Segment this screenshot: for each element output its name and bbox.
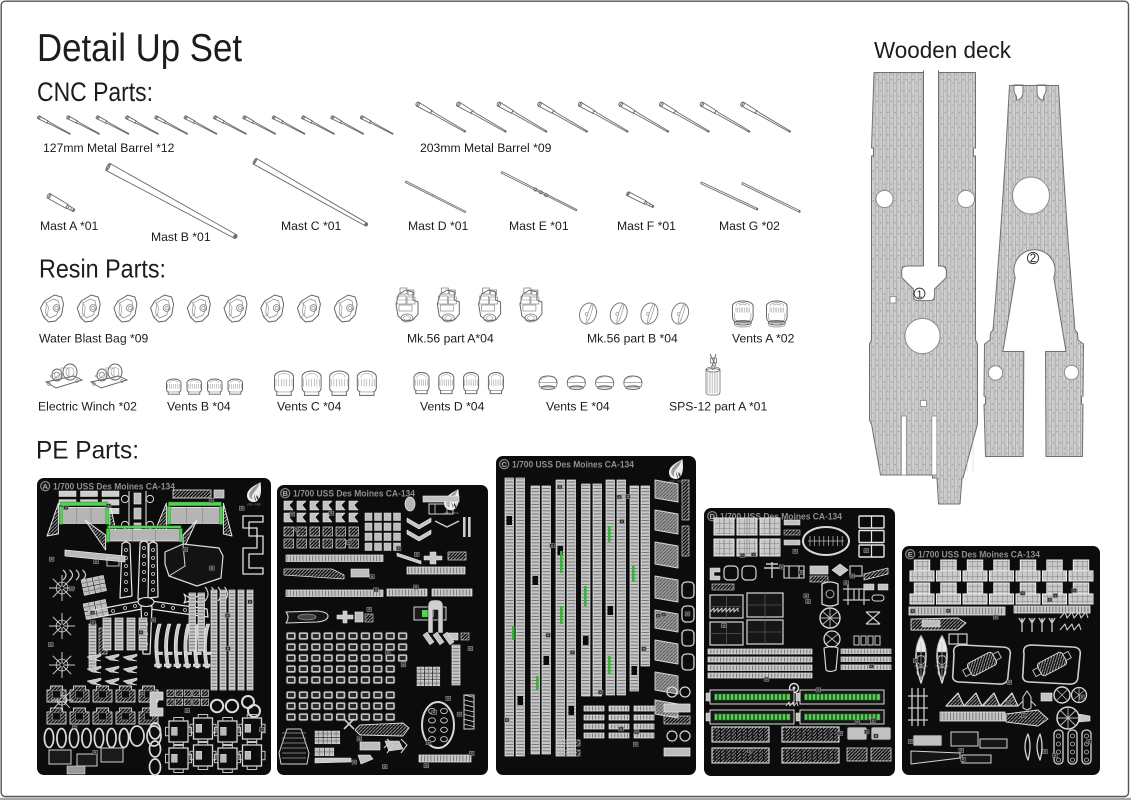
svg-text:1/700 USS Des Moines CA-134: 1/700 USS Des Moines CA-134: [293, 488, 416, 499]
svg-text:Mast F *01: Mast F *01: [617, 219, 676, 233]
svg-text:203mm Metal Barrel *09: 203mm Metal Barrel *09: [420, 141, 552, 155]
svg-text:1/700 USS Des Moines CA-134: 1/700 USS Des Moines CA-134: [53, 481, 176, 492]
svg-text:1: 1: [917, 289, 923, 301]
svg-text:Water Blast Bag *09: Water Blast Bag *09: [39, 332, 149, 346]
svg-text:Mast A *01: Mast A *01: [40, 219, 98, 233]
svg-text:A: A: [42, 482, 48, 491]
svg-text:Vents C *04: Vents C *04: [277, 399, 342, 413]
svg-text:E: E: [908, 550, 913, 559]
svg-text:Vents E *04: Vents E *04: [546, 399, 610, 413]
svg-text:Resin Parts:: Resin Parts:: [39, 254, 166, 284]
svg-text:Mast E *01: Mast E *01: [509, 219, 569, 233]
svg-text:Vents A *02: Vents A *02: [732, 332, 795, 346]
svg-text:Mast G *02: Mast G *02: [719, 219, 780, 233]
svg-text:2: 2: [1030, 253, 1036, 265]
svg-text:Detail Up Set: Detail Up Set: [37, 27, 242, 70]
svg-text:Electric Winch *02: Electric Winch *02: [38, 399, 137, 413]
svg-text:Mk.56 part B *04: Mk.56 part B *04: [587, 332, 678, 346]
svg-text:Mast B *01: Mast B *01: [151, 230, 211, 244]
svg-text:Mast C *01: Mast C *01: [281, 219, 342, 233]
svg-text:B: B: [282, 489, 288, 498]
svg-text:SPS-12 part A *01: SPS-12 part A *01: [669, 399, 767, 413]
svg-text:Mk.56 part A*04: Mk.56 part A*04: [407, 332, 494, 346]
svg-text:Wooden deck: Wooden deck: [874, 37, 1011, 63]
svg-text:VERY FIRE: VERY FIRE: [247, 502, 261, 506]
svg-text:1/700 USS Des Moines CA-134: 1/700 USS Des Moines CA-134: [512, 459, 635, 470]
svg-text:PE Parts:: PE Parts:: [36, 437, 139, 465]
svg-text:C: C: [501, 460, 507, 469]
svg-text:Vents D *04: Vents D *04: [420, 399, 485, 413]
svg-text:1/700 USS Des Moines CA-134: 1/700 USS Des Moines CA-134: [918, 549, 1041, 560]
svg-text:127mm Metal Barrel *12: 127mm Metal Barrel *12: [43, 141, 175, 155]
svg-text:Vents B *04: Vents B *04: [167, 399, 231, 413]
svg-text:CNC Parts:: CNC Parts:: [37, 77, 153, 107]
svg-text:Mast D *01: Mast D *01: [408, 219, 469, 233]
